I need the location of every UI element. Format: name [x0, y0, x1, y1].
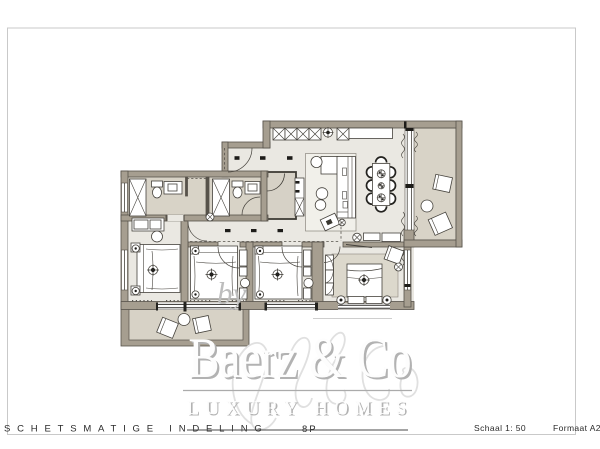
svg-text:Baerz & Co: Baerz & Co	[188, 328, 411, 390]
svg-text:Schaal 1: 50: Schaal 1: 50	[474, 423, 526, 433]
svg-text:SCHETSMATIGE INDELING: SCHETSMATIGE INDELING	[4, 424, 269, 435]
svg-text:8P: 8P	[302, 424, 318, 435]
svg-text:Formaat A2: Formaat A2	[553, 423, 600, 433]
svg-text:LUXURY HOMES: LUXURY HOMES	[187, 397, 413, 419]
svg-text:by: by	[217, 276, 247, 311]
